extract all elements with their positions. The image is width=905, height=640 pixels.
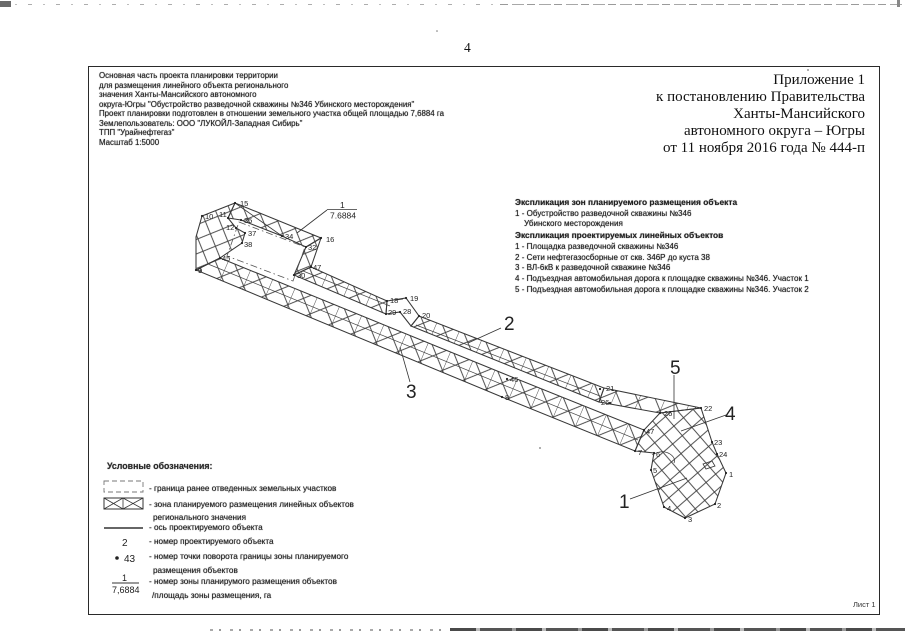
svg-text:23: 23 <box>714 438 722 447</box>
svg-text:43: 43 <box>124 554 136 565</box>
svg-text:2: 2 <box>717 501 721 510</box>
svg-text:18: 18 <box>390 296 398 305</box>
svg-text:9: 9 <box>198 266 202 275</box>
svg-text:5: 5 <box>670 358 681 379</box>
svg-text:8: 8 <box>505 393 509 402</box>
svg-text:7,6884: 7,6884 <box>112 585 140 595</box>
svg-text:29: 29 <box>388 308 396 317</box>
svg-text:7.6884: 7.6884 <box>330 211 356 221</box>
svg-text:34: 34 <box>285 232 293 241</box>
svg-text:1: 1 <box>340 200 345 210</box>
svg-text:35: 35 <box>244 216 252 225</box>
svg-text:46: 46 <box>510 375 518 384</box>
svg-text:10: 10 <box>205 212 213 221</box>
svg-text:12: 12 <box>226 223 234 232</box>
svg-text:47: 47 <box>313 263 321 272</box>
svg-text:38: 38 <box>244 240 252 249</box>
svg-text:5: 5 <box>653 466 657 475</box>
svg-text:3: 3 <box>688 515 692 524</box>
svg-text:45: 45 <box>222 254 230 263</box>
svg-text:20: 20 <box>422 311 430 320</box>
svg-text:4: 4 <box>725 404 736 425</box>
svg-text:32: 32 <box>308 243 316 252</box>
svg-text:4: 4 <box>667 504 671 513</box>
svg-text:24: 24 <box>719 450 727 459</box>
svg-text:1: 1 <box>729 470 733 479</box>
svg-text:47: 47 <box>646 427 654 436</box>
svg-text:3: 3 <box>406 382 417 403</box>
svg-text:2: 2 <box>504 314 515 335</box>
svg-text:26: 26 <box>601 398 609 407</box>
svg-text:2: 2 <box>122 538 128 549</box>
svg-text:37: 37 <box>248 229 256 238</box>
svg-text:22: 22 <box>704 404 712 413</box>
svg-text:26: 26 <box>664 409 672 418</box>
svg-text:30: 30 <box>297 271 305 280</box>
svg-text:1: 1 <box>122 573 127 583</box>
svg-text:11: 11 <box>219 210 227 219</box>
svg-text:6: 6 <box>656 450 660 459</box>
svg-text:21: 21 <box>606 384 614 393</box>
svg-text:16: 16 <box>326 235 334 244</box>
svg-text:15: 15 <box>240 199 248 208</box>
svg-text:7: 7 <box>638 448 642 457</box>
svg-text:28: 28 <box>403 307 411 316</box>
svg-text:1: 1 <box>619 492 630 513</box>
svg-text:19: 19 <box>410 294 418 303</box>
